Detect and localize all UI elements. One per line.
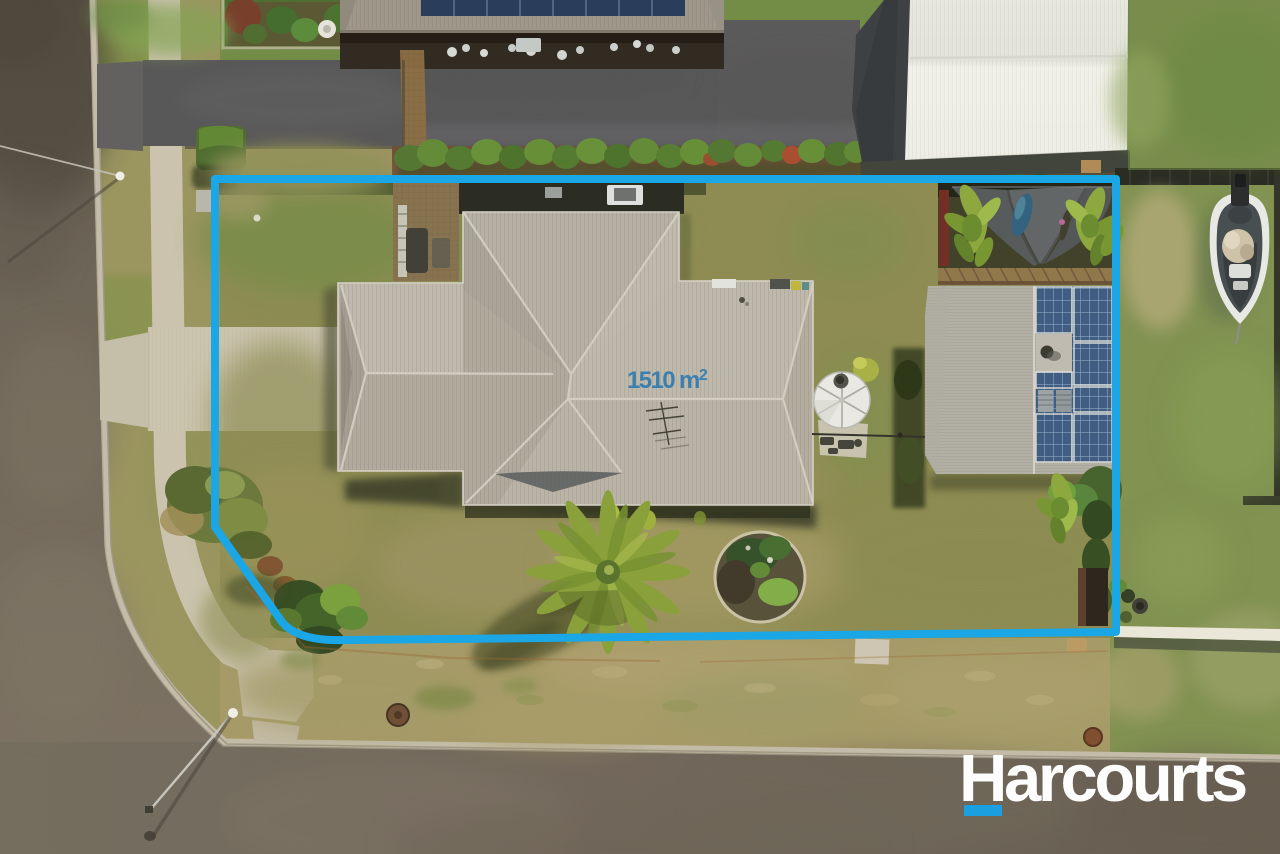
svg-text:Harcourts: Harcourts (959, 741, 1246, 816)
svg-text:1510 m2: 1510 m2 (627, 367, 708, 394)
